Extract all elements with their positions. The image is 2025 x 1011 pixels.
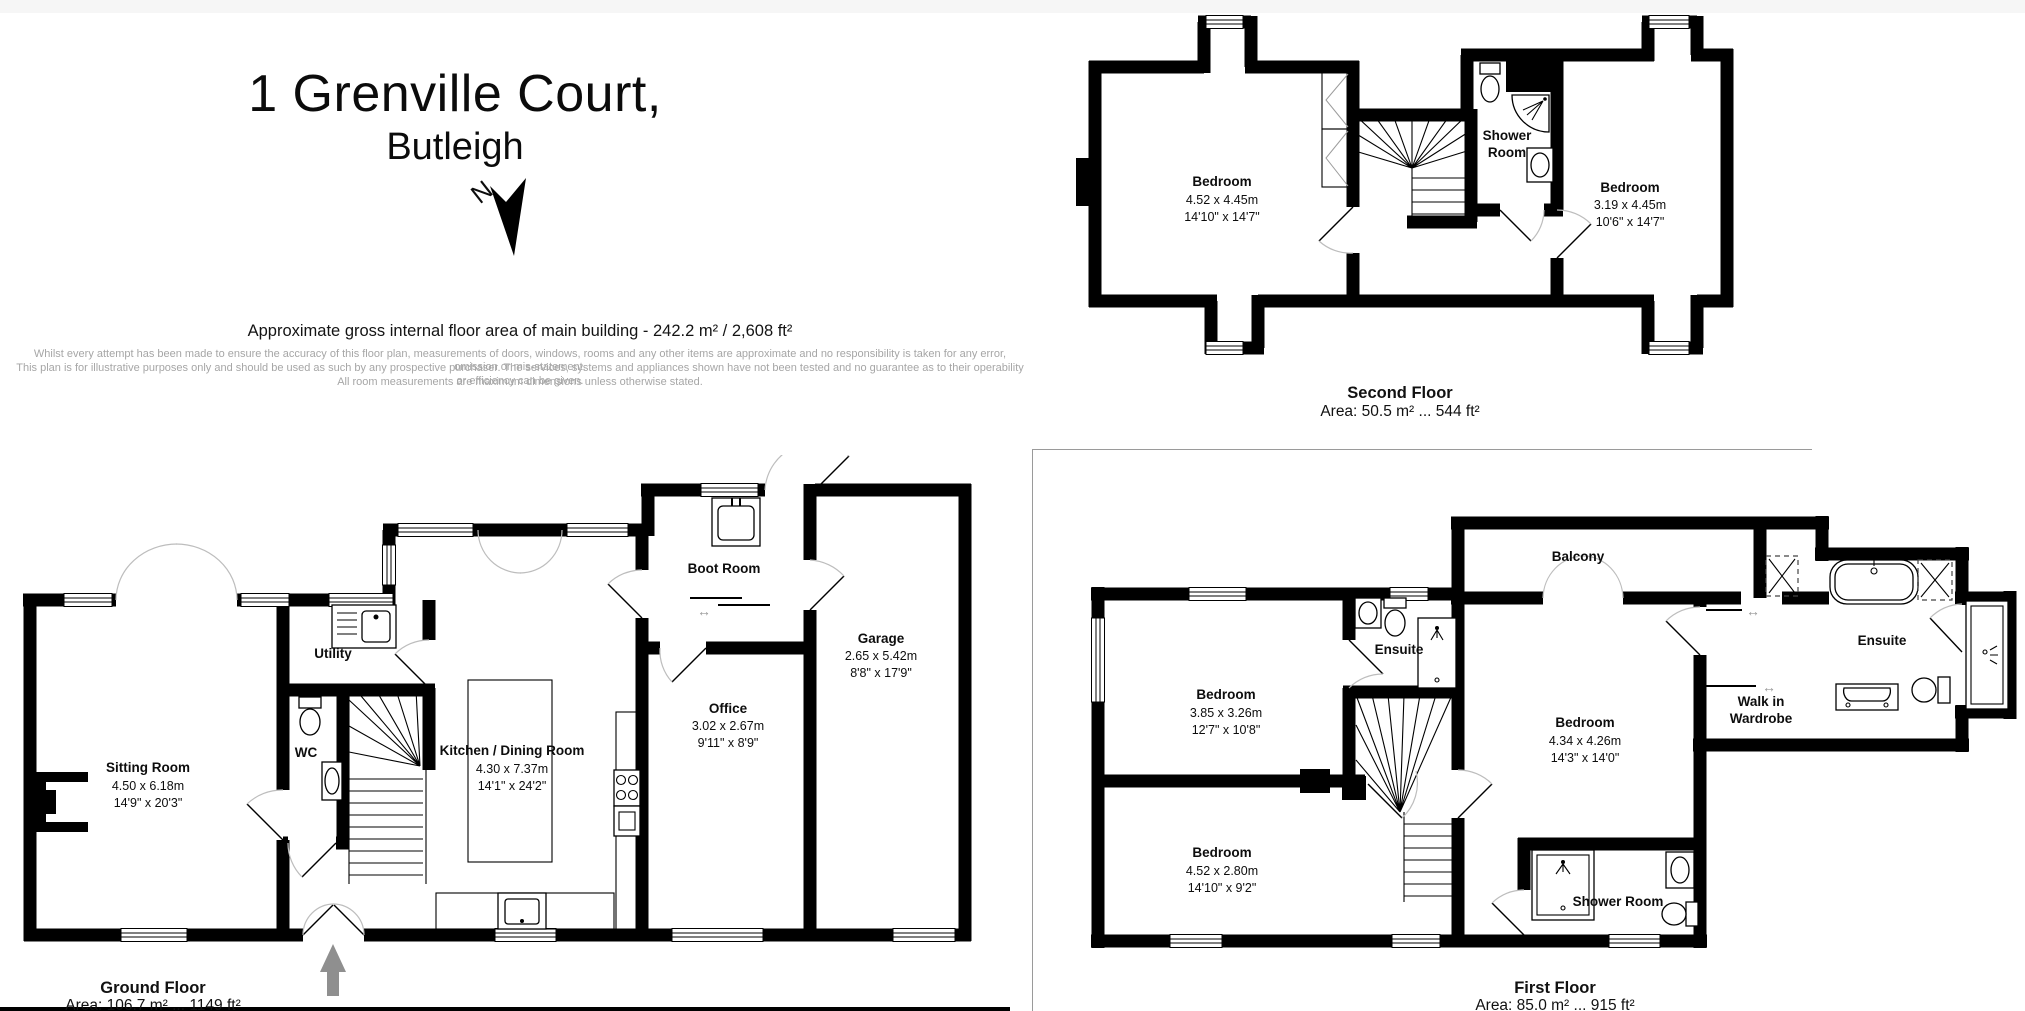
room-label-wardrobe: Walk in Wardrobe (1730, 694, 1793, 726)
room-name: Garage (858, 631, 905, 646)
window (1170, 935, 1222, 948)
first-floor-ca ption: First Floor (1514, 979, 1596, 998)
room-label-sitting: Sitting Room 4.50 x 6.18m 14'9" x 20'3" (106, 760, 190, 810)
room-label-garage: Garage 2.65 x 5.42m 8'8" x 17'9" (845, 631, 917, 680)
kitchen-sink-icon (498, 893, 546, 929)
room-name: Kitchen / Dining Room (440, 743, 585, 758)
room-label-shower-2f: Shower Room (1483, 128, 1533, 160)
room-dim-ft: 14'10" x 14'7" (1184, 210, 1260, 224)
room-name: Bedroom (1192, 174, 1251, 189)
window (1649, 16, 1689, 29)
room-dim-m: 4.30 x 7.37m (476, 762, 548, 776)
north-arrow-icon: N (440, 168, 570, 260)
disclaimer-line3: All room measurements are maximum dimens… (15, 376, 1025, 389)
room-dim-m: 4.50 x 6.18m (112, 779, 184, 793)
window (1092, 618, 1105, 702)
room-label-shower-1f: Shower Room (1573, 894, 1664, 909)
basin-icon (1836, 684, 1898, 710)
shower-icon (1418, 618, 1456, 688)
window (383, 545, 396, 585)
first-floor-area: Area: 85.0 m² ... 915 ft² (1475, 997, 1634, 1011)
bath-icon (1830, 560, 1918, 604)
fireplace-icon (30, 772, 88, 832)
second-floor-caption: Second Floor (1347, 384, 1452, 403)
window (398, 524, 473, 537)
north-arrow-dart (490, 178, 526, 256)
wall-notch (1300, 769, 1330, 793)
room-name: Room (1488, 145, 1526, 160)
room-name: Wardrobe (1730, 711, 1793, 726)
window (241, 594, 289, 607)
window (1609, 935, 1660, 948)
room-dim-ft: 14'9" x 20'3" (114, 796, 183, 810)
utility-sink-icon (332, 605, 396, 648)
room-label-boot: Boot Room (688, 561, 761, 576)
boot-room-sink-icon (712, 498, 760, 546)
basin-icon (322, 762, 342, 800)
toilet-icon (1912, 677, 1950, 703)
basin-icon (1355, 598, 1381, 628)
room-label-ensuite1: Ensuite (1375, 642, 1424, 657)
window (1206, 342, 1243, 355)
second-floor-area: Area: 50.5 m² ... 544 ft² (1320, 403, 1479, 421)
room-name: Bedroom (1555, 715, 1614, 730)
room-dim-m: 4.34 x 4.26m (1549, 734, 1621, 748)
gross-area-summary: Approximate gross internal floor area of… (20, 322, 1020, 341)
wardrobe-icon (1322, 72, 1348, 187)
duct-block (1506, 61, 1553, 92)
room-dim-ft: 8'8" x 17'9" (850, 666, 912, 680)
room-dim-m: 3.19 x 4.45m (1594, 198, 1666, 212)
room-dim-m: 2.65 x 5.42m (845, 649, 917, 663)
sliding-door-icon: ↔ ↔ (1702, 603, 1776, 695)
wall-notch (1342, 776, 1366, 800)
corner-shower-icon (1512, 95, 1549, 132)
window (64, 594, 112, 607)
property-title-line1: 1 Grenville Court, (130, 64, 780, 124)
entrance-arrow-icon (320, 944, 346, 996)
room-dim-ft: 14'3" x 14'0" (1551, 751, 1620, 765)
window (567, 524, 628, 537)
second-floor-plan: Bedroom 4.52 x 4.45m 14'10" x 14'7" Show… (1060, 0, 1760, 440)
room-dim-ft: 12'7" x 10'8" (1192, 723, 1261, 737)
ground-floor-caption: Ground Floor (100, 979, 205, 998)
window (1206, 16, 1243, 29)
slide-arrow: ↔ (697, 603, 711, 619)
room-label-office: Office 3.02 x 2.67m 9'11" x 8'9" (692, 701, 764, 750)
window (1649, 342, 1689, 355)
window (701, 484, 758, 497)
room-label-ensuite2: Ensuite (1858, 633, 1907, 648)
ground-floor-area: Area: 106.7 m² ... 1149 ft² (65, 997, 240, 1011)
basin-icon (1527, 148, 1553, 182)
room-dim-ft: 10'6" x 14'7" (1596, 215, 1665, 229)
chimney-protrusion (1076, 158, 1097, 206)
toilet-icon (1384, 598, 1406, 636)
room-name: Bedroom (1600, 180, 1659, 195)
toilet-icon (299, 697, 321, 735)
room-dim-ft: 14'10" x 9'2" (1188, 881, 1257, 895)
room-label-bedroom1-2f: Bedroom 4.52 x 4.45m 14'10" x 14'7" (1184, 174, 1260, 224)
ground-floor-windows (64, 484, 955, 942)
sliding-door-icon: ↔ (690, 598, 770, 619)
room-name: Sitting Room (106, 760, 190, 775)
room-dim-ft: 9'11" x 8'9" (698, 736, 759, 750)
window (121, 929, 187, 942)
room-label-bedroom3-1f: Bedroom 4.52 x 2.80m 14'10" x 9'2" (1186, 845, 1258, 895)
window (1392, 935, 1440, 948)
room-label-utility: Utility (314, 646, 352, 661)
room-label-balcony: Balcony (1552, 549, 1605, 564)
room-dim-m: 3.85 x 3.26m (1190, 706, 1262, 720)
property-title-line2: Butleigh (130, 126, 780, 169)
hob-icon (614, 770, 640, 836)
window (495, 929, 556, 942)
ground-floor-stairs (349, 690, 426, 884)
room-label-kitchen: Kitchen / Dining Room 4.30 x 7.37m 14'1"… (440, 743, 585, 793)
room-label-bedroom2-1f: Bedroom 4.34 x 4.26m 14'3" x 14'0" (1549, 715, 1621, 765)
room-dim-m: 4.52 x 4.45m (1186, 193, 1258, 207)
ground-floor-plan: ↔ (0, 455, 1020, 1011)
room-label-bedroom2-2f: Bedroom 3.19 x 4.45m 10'6" x 14'7" (1594, 180, 1666, 229)
shower-icon (1532, 850, 1594, 920)
shower-icon (1966, 601, 2008, 709)
room-dim-ft: 14'1" x 24'2" (478, 779, 547, 793)
toilet-icon (1662, 902, 1698, 926)
window (893, 929, 955, 942)
room-dim-m: 4.52 x 2.80m (1186, 864, 1258, 878)
ground-floor-walls (23, 484, 971, 941)
room-name: Shower (1483, 128, 1533, 143)
room-dim-m: 3.02 x 2.67m (692, 719, 764, 733)
basin-icon (1666, 852, 1694, 888)
slide-arrow: ↔ (1762, 679, 1776, 695)
room-name: Bedroom (1196, 687, 1255, 702)
room-label-wc: WC (295, 745, 318, 760)
window (1189, 588, 1246, 601)
window (672, 929, 763, 942)
room-name: Walk in (1738, 694, 1785, 709)
slide-arrow: ↔ (1746, 603, 1760, 619)
toilet-icon (1480, 63, 1500, 102)
room-label-bedroom1-1f: Bedroom 3.85 x 3.26m 12'7" x 10'8" (1190, 687, 1262, 737)
first-floor-stairs (1356, 695, 1455, 902)
room-name: Office (709, 701, 748, 716)
first-floor-plan: ↔ ↔ (1020, 440, 2025, 1011)
floorplan-page: 1 Grenville Court, Butleigh N Approximat… (0, 0, 2025, 1011)
second-floor-stairs (1355, 115, 1467, 218)
room-name: Bedroom (1192, 845, 1251, 860)
